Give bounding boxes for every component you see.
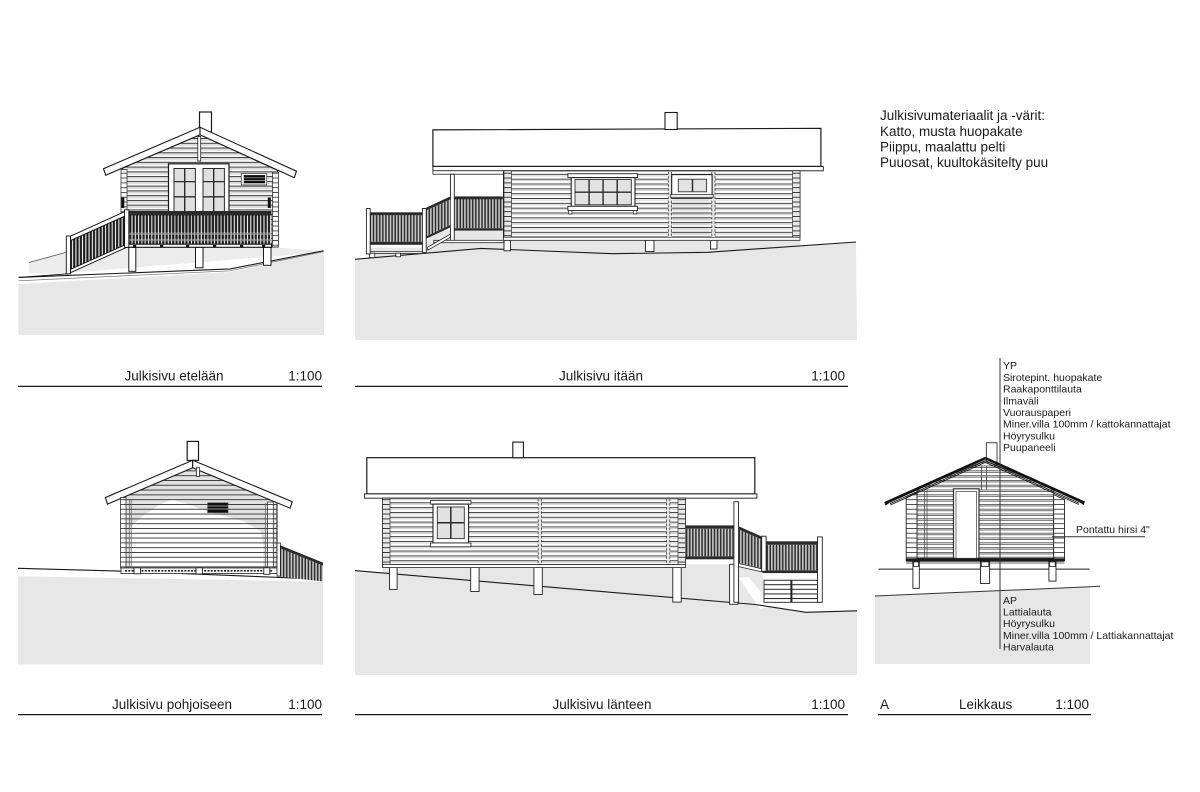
svg-text:Julkisivu pohjoiseen: Julkisivu pohjoiseen bbox=[112, 697, 232, 712]
svg-text:Julkisivumateriaalit ja -värit: Julkisivumateriaalit ja -värit: bbox=[880, 108, 1045, 123]
svg-text:Sirotepint. huopakate: Sirotepint. huopakate bbox=[1003, 372, 1102, 384]
svg-text:Ilmaväli: Ilmaväli bbox=[1003, 395, 1039, 407]
svg-text:1:100: 1:100 bbox=[288, 369, 322, 384]
svg-text:Julkisivu länteen: Julkisivu länteen bbox=[552, 697, 651, 712]
svg-text:Miner.villa 100mm / kattokanna: Miner.villa 100mm / kattokannattajat bbox=[1003, 419, 1171, 431]
svg-text:1:100: 1:100 bbox=[811, 697, 845, 712]
svg-text:YP: YP bbox=[1003, 360, 1017, 372]
svg-text:A: A bbox=[880, 697, 889, 712]
svg-text:Katto, musta huopakate: Katto, musta huopakate bbox=[880, 124, 1023, 139]
svg-text:Julkisivu itään: Julkisivu itään bbox=[559, 369, 643, 384]
svg-text:Vuorauspaperi: Vuorauspaperi bbox=[1003, 407, 1071, 419]
svg-text:Lattialauta: Lattialauta bbox=[1003, 607, 1052, 619]
svg-text:1:100: 1:100 bbox=[811, 369, 845, 384]
svg-text:Harvalauta: Harvalauta bbox=[1003, 642, 1054, 654]
svg-text:Leikkaus: Leikkaus bbox=[959, 697, 1013, 712]
svg-text:Julkisivu etelään: Julkisivu etelään bbox=[124, 369, 223, 384]
svg-text:Höyrysulku: Höyrysulku bbox=[1003, 430, 1055, 442]
svg-text:Puupaneeli: Puupaneeli bbox=[1003, 442, 1056, 454]
svg-text:AP: AP bbox=[1003, 595, 1017, 607]
svg-text:Raakaponttilauta: Raakaponttilauta bbox=[1003, 384, 1082, 396]
svg-text:Miner.villa 100mm / Lattiakann: Miner.villa 100mm / Lattiakannattajat bbox=[1003, 630, 1174, 642]
svg-text:1:100: 1:100 bbox=[288, 697, 322, 712]
svg-text:Puuosat, kuultokäsitelty puu: Puuosat, kuultokäsitelty puu bbox=[880, 155, 1048, 170]
svg-text:1:100: 1:100 bbox=[1055, 697, 1089, 712]
svg-text:Pontattu hirsi 4": Pontattu hirsi 4" bbox=[1076, 524, 1150, 536]
svg-text:Piippu, maalattu pelti: Piippu, maalattu pelti bbox=[880, 140, 1005, 155]
svg-text:Höyrysulku: Höyrysulku bbox=[1003, 618, 1055, 630]
